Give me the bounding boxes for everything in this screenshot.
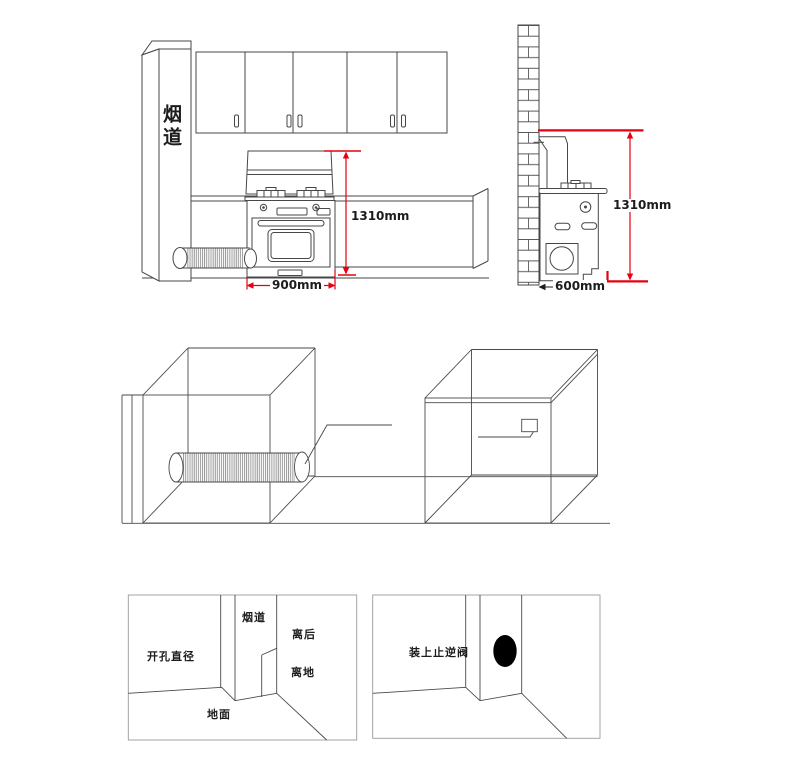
floor-clearance-label: 离地 <box>291 667 315 679</box>
flue-hole-outline <box>262 648 277 697</box>
side-countertop <box>539 189 607 194</box>
rear-clearance-label: 离后 <box>292 629 316 641</box>
cabinet-handle <box>402 115 406 127</box>
check-valve-hole <box>493 635 516 667</box>
flue-column <box>142 41 191 281</box>
cabinet-handle <box>298 115 302 127</box>
upper-cabinets <box>196 52 447 133</box>
check-valve-label: 装上止逆阀 <box>409 647 469 659</box>
duct-leader-line <box>305 425 392 464</box>
cabinet-handle <box>287 115 291 127</box>
side-gas-burner <box>561 181 591 189</box>
cabinet-duct-3d-drawing <box>122 348 610 523</box>
front-height-dimension: 1310mm <box>351 210 409 223</box>
wall-outlet-3d <box>522 419 538 431</box>
flue-label-front: 烟道 <box>160 104 180 150</box>
diagram-linework <box>0 0 790 777</box>
side-view-drawing <box>518 25 648 290</box>
flue-label-panel: 烟道 <box>242 612 266 624</box>
front-width-dimension: 900mm <box>270 279 324 292</box>
side-height-dimension: 1310mm <box>611 199 673 212</box>
side-stove-body <box>540 194 598 281</box>
detail-panel-right-drawing <box>373 595 600 738</box>
panel-border <box>373 595 600 738</box>
cabinet-handle <box>235 115 239 127</box>
outlet-leader-line <box>478 432 534 437</box>
brick-wall-flue <box>518 25 539 285</box>
wireframe-box-left <box>143 348 315 523</box>
side-depth-dimension: 600mm <box>553 280 607 293</box>
hole-diameter-label: 开孔直径 <box>147 651 195 663</box>
floor-junction-lines <box>373 687 567 738</box>
integrated-stove-body <box>247 201 335 278</box>
stove-backsplash <box>246 151 333 194</box>
bottom-reference-step <box>606 271 648 281</box>
exhaust-hose <box>173 248 257 269</box>
wireframe-box-right <box>425 350 598 524</box>
installation-diagram-page: 烟道 1310mm 900mm 1310mm 600mm 烟道 离后 开孔直径 … <box>0 0 790 777</box>
ground-label: 地面 <box>207 709 231 721</box>
duct-3d <box>169 425 392 482</box>
cabinet-handle <box>391 115 395 127</box>
front-view-drawing <box>142 41 489 290</box>
